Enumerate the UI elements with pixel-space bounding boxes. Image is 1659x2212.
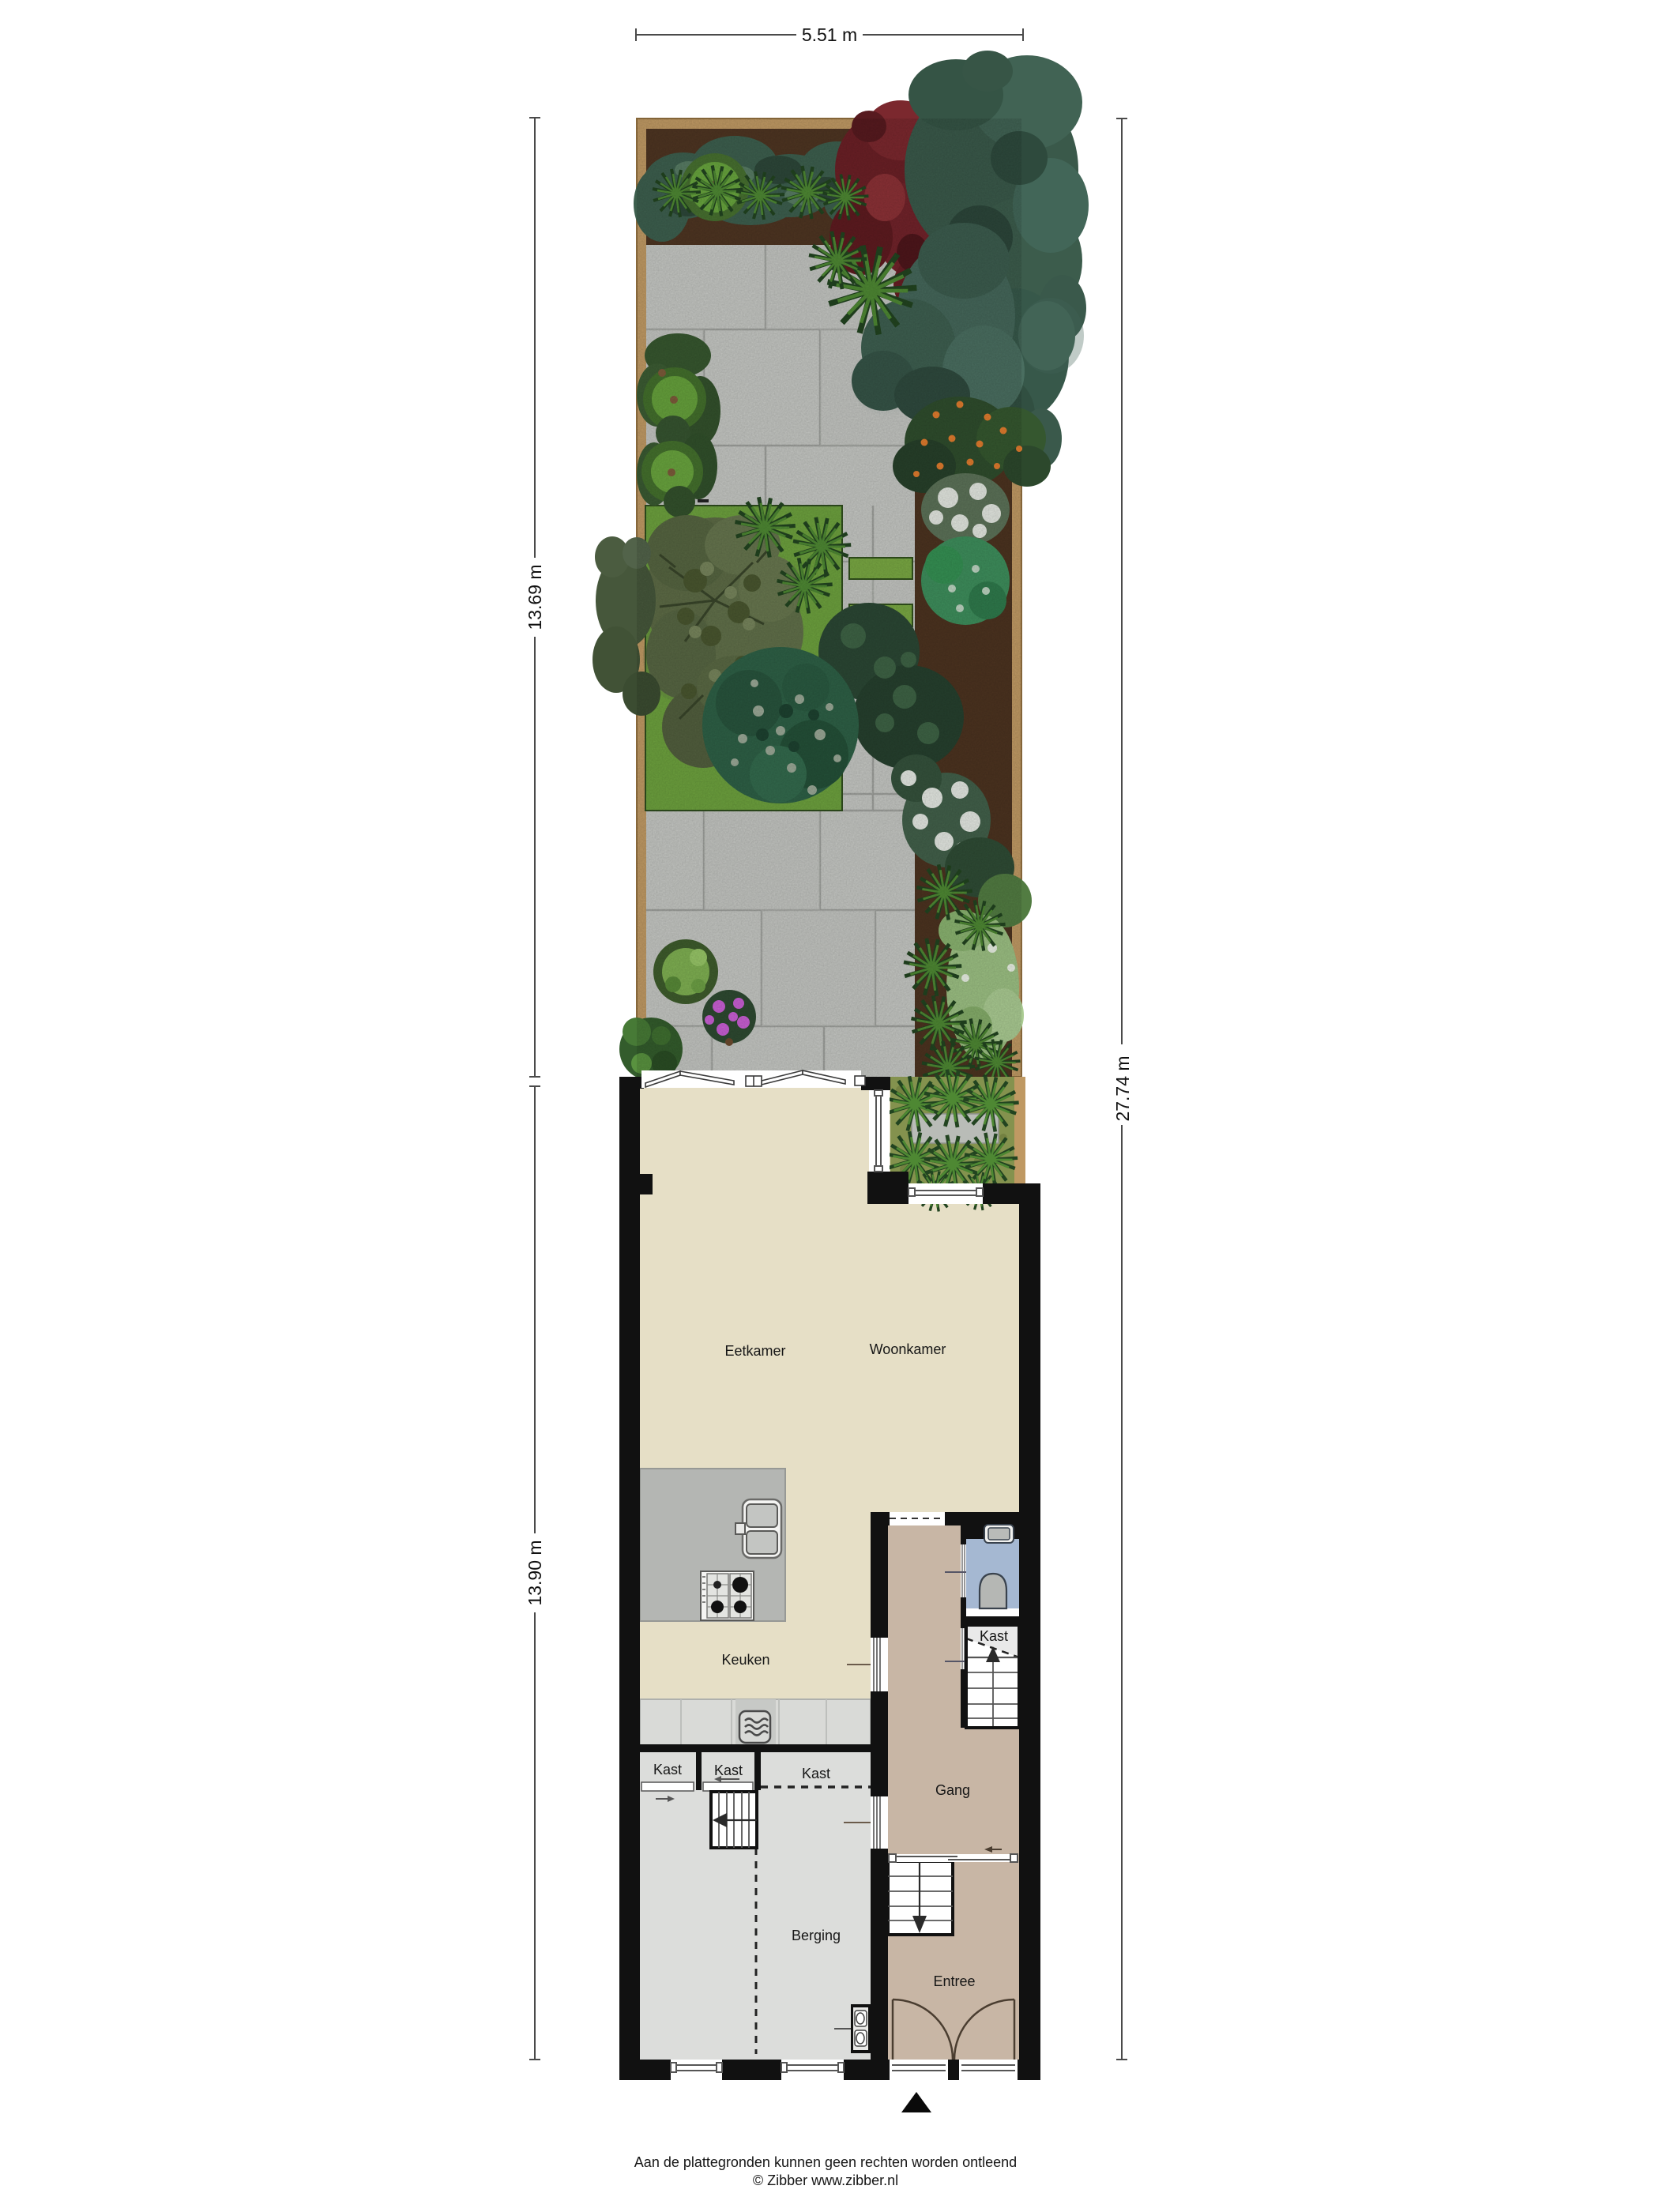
svg-text:Gang: Gang	[935, 1782, 970, 1798]
svg-text:13.69 m: 13.69 m	[525, 564, 545, 630]
svg-text:5.51 m: 5.51 m	[802, 24, 857, 45]
svg-text:27.74 m: 27.74 m	[1112, 1055, 1133, 1121]
svg-text:Keuken: Keuken	[721, 1652, 769, 1668]
svg-text:Kast: Kast	[714, 1762, 743, 1778]
svg-text:Kast: Kast	[802, 1766, 830, 1781]
svg-text:Woonkamer: Woonkamer	[870, 1341, 946, 1357]
svg-text:13.90 m: 13.90 m	[525, 1540, 545, 1605]
svg-text:Kast: Kast	[980, 1628, 1008, 1644]
svg-text:Aan de plattegronden kunnen ge: Aan de plattegronden kunnen geen rechten…	[634, 2154, 1017, 2170]
svg-text:© Zibber www.zibber.nl: © Zibber www.zibber.nl	[753, 2172, 898, 2188]
svg-text:Entree: Entree	[933, 1973, 975, 1989]
svg-text:Berging: Berging	[792, 1928, 841, 1943]
svg-text:Eetkamer: Eetkamer	[724, 1343, 785, 1359]
svg-text:Kast: Kast	[653, 1762, 682, 1777]
